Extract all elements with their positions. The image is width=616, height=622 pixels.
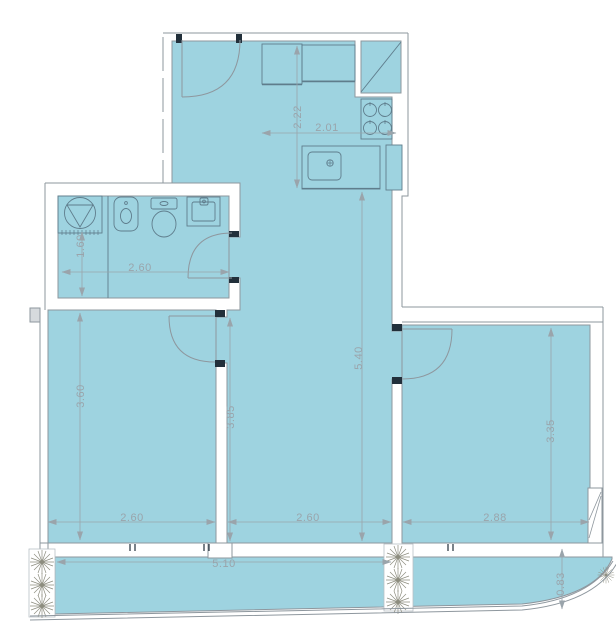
dim-label-terrace-width: 5.10: [212, 558, 235, 570]
bedroom-right-door-jamb-top: [392, 324, 402, 331]
appliance-icon: [386, 145, 402, 190]
entrance-jamb-left: [176, 34, 182, 43]
outer-wall-right-upper: [402, 33, 408, 307]
dim-label-terrace-depth: 0.83: [555, 572, 567, 595]
entrance-jamb-right: [236, 34, 242, 43]
dim-label-kitchen-width: 2.01: [315, 122, 338, 134]
bedroom-left-door-jamb-bottom: [215, 360, 225, 367]
floor-plan-svg: 2.22 2.01 1.60 2.60 5.40 3.85 3.60 2.60 …: [0, 0, 616, 622]
dim-label-living-depth: 5.40: [353, 346, 365, 369]
window-tick: [448, 544, 453, 551]
dim-label-bedroom-left-width: 2.60: [120, 512, 143, 524]
dim-label-living-width: 2.60: [296, 512, 319, 524]
bedroom-left-door-jamb-top: [215, 310, 225, 317]
dim-label-bedroom-right-depth: 3.35: [545, 419, 557, 442]
window-tick: [130, 544, 135, 551]
outer-wall-right-step: [402, 307, 603, 322]
dim-label-bedroom-left-depth: 3.60: [75, 384, 87, 407]
terrace-pillar: [208, 543, 232, 558]
bedroom-right-floor: [402, 325, 590, 543]
dim-label-bathroom-depth: 1.60: [75, 234, 87, 257]
bath-door-jamb-top: [229, 231, 239, 237]
window-right-wall: [588, 488, 602, 543]
bedroom-left-floor: [48, 310, 216, 543]
dim-label-kitchen-depth: 2.22: [292, 105, 304, 128]
dim-label-center-depth: 3.85: [225, 405, 237, 428]
floor-plan-page: 2.22 2.01 1.60 2.60 5.40 3.85 3.60 2.60 …: [0, 0, 616, 622]
bedroom-right-door-jamb-bottom: [392, 377, 402, 384]
dim-label-bedroom-right-width: 2.88: [483, 512, 506, 524]
column: [30, 308, 40, 322]
dim-label-bathroom-width: 2.60: [128, 262, 151, 274]
